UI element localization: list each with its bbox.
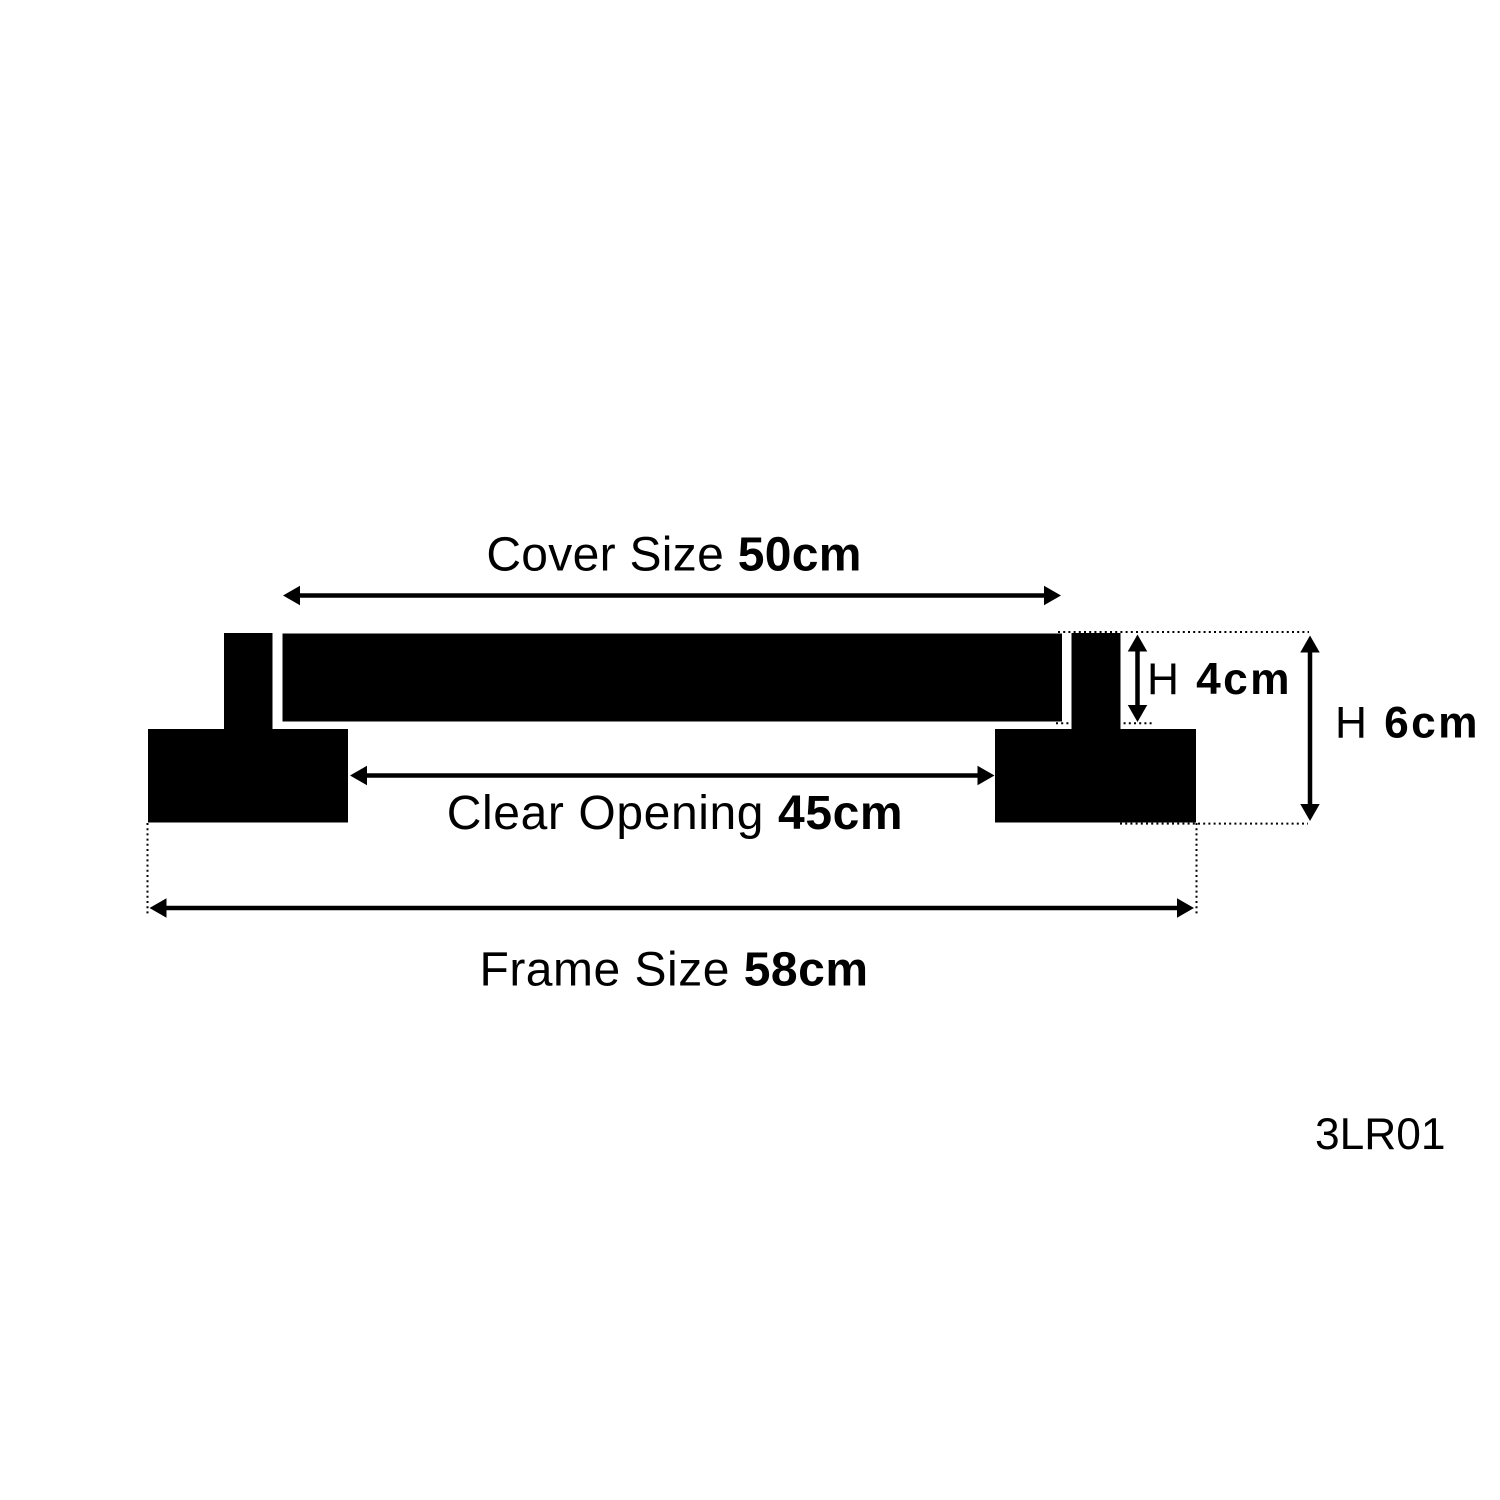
- svg-text:Clear Opening 45cm: Clear Opening 45cm: [447, 787, 903, 840]
- svg-text:H 6cm: H 6cm: [1335, 699, 1480, 748]
- svg-text:3LR01: 3LR01: [1315, 1110, 1446, 1159]
- svg-text:H 4cm: H 4cm: [1147, 655, 1292, 704]
- svg-text:Cover Size 50cm: Cover Size 50cm: [486, 528, 861, 581]
- svg-text:Frame Size 58cm: Frame Size 58cm: [479, 943, 868, 996]
